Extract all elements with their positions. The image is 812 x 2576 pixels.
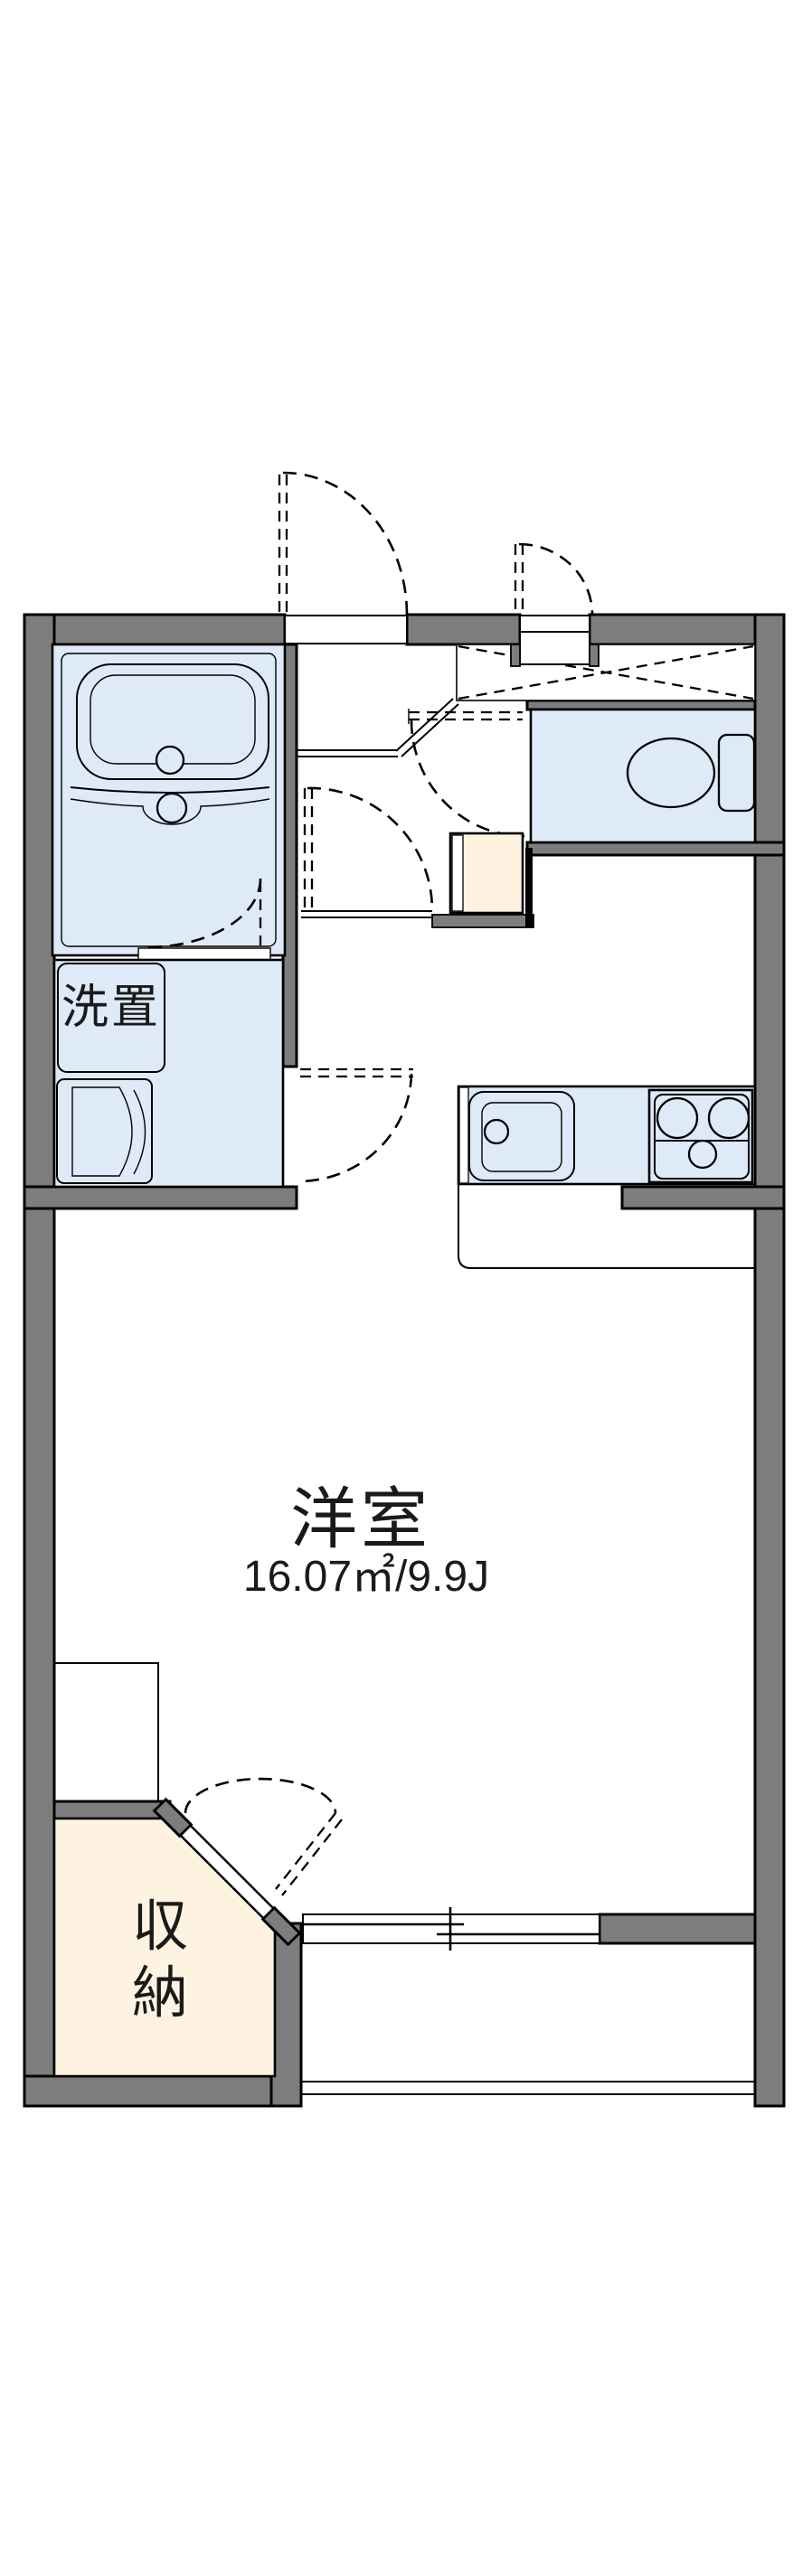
shoe-cabinet-side-wall bbox=[525, 848, 533, 927]
entrance-door-arc bbox=[283, 473, 407, 615]
entrance-door-opening bbox=[285, 616, 407, 644]
closet-door-leaf-line-1 bbox=[276, 1813, 335, 1889]
main-room-area-label: 16.07㎡/9.9J bbox=[243, 1553, 489, 1601]
floorplan-canvas: 洗置 bbox=[0, 0, 812, 2576]
right-wall bbox=[755, 615, 784, 2106]
main-room-window bbox=[303, 1907, 600, 1951]
room-bathroom bbox=[52, 644, 285, 963]
main-room-label: 洋室 bbox=[290, 1481, 431, 1556]
room-washroom: 洗置 bbox=[54, 960, 283, 1187]
stove-burner-left-icon bbox=[657, 1098, 697, 1138]
bottom-wall-closet-block bbox=[24, 2076, 301, 2106]
shoe-cabinet-door-band bbox=[452, 835, 463, 911]
washroom-bottom-wall bbox=[24, 1187, 297, 1208]
kitchen-partition-wall bbox=[622, 1187, 784, 1208]
toilet-door-swing bbox=[409, 709, 524, 836]
entrance-open-leaf-line-1 bbox=[396, 699, 453, 751]
bathtub-drain-icon bbox=[156, 747, 184, 774]
toilet-bowl bbox=[628, 738, 714, 807]
closet-door-arc bbox=[185, 1779, 335, 1813]
stove-burner-right-icon bbox=[709, 1098, 749, 1138]
trunk-door-arc bbox=[519, 544, 592, 615]
closet-label-line2: 納 bbox=[132, 1962, 188, 2025]
hall-door-arc bbox=[307, 788, 432, 910]
trunk-recess-jamb-left bbox=[511, 644, 520, 666]
alcove-outline bbox=[54, 1663, 158, 1801]
trunk-recess-jamb-right bbox=[590, 644, 599, 666]
top-wall-left-segment bbox=[24, 615, 285, 644]
toilet-bottom-wall bbox=[527, 842, 784, 855]
toilet-tank bbox=[719, 735, 754, 811]
balcony bbox=[301, 2082, 755, 2094]
floorplan-page: 洗置 bbox=[0, 0, 812, 2576]
closet-top-wall bbox=[54, 1801, 170, 1819]
closet-label-line1: 収 bbox=[132, 1895, 188, 1958]
entrance-door-swing bbox=[279, 473, 407, 615]
closet-door-leaf-line-2 bbox=[282, 1819, 342, 1895]
trunk-door-recess bbox=[520, 616, 590, 664]
shoe-cabinet bbox=[450, 833, 523, 913]
trunk-door-swing bbox=[515, 544, 592, 615]
kitchen bbox=[458, 1086, 755, 1268]
toilet-door-arc bbox=[411, 720, 524, 836]
room-toilet bbox=[409, 709, 755, 842]
top-wall-middle-segment bbox=[407, 615, 520, 644]
kitchen-faucet-icon bbox=[485, 1120, 508, 1143]
washer-area-label: 洗置 bbox=[61, 982, 161, 1034]
shoe-cabinet-bottom-wall bbox=[432, 915, 533, 927]
stove-burner-small-icon bbox=[689, 1141, 716, 1168]
hall-room-door-swing bbox=[301, 788, 432, 917]
bath-faucet-icon bbox=[157, 794, 186, 823]
bottom-wall-window-side-segment bbox=[600, 1914, 755, 1943]
left-wall bbox=[24, 615, 54, 2106]
washroom-door-arc bbox=[298, 1074, 411, 1181]
washroom-door-swing bbox=[298, 1069, 413, 1181]
room-main: 洋室 16.07㎡/9.9J bbox=[243, 1481, 489, 1601]
toilet-top-wall bbox=[527, 700, 755, 710]
kitchen-counter-left-end bbox=[459, 1087, 468, 1183]
